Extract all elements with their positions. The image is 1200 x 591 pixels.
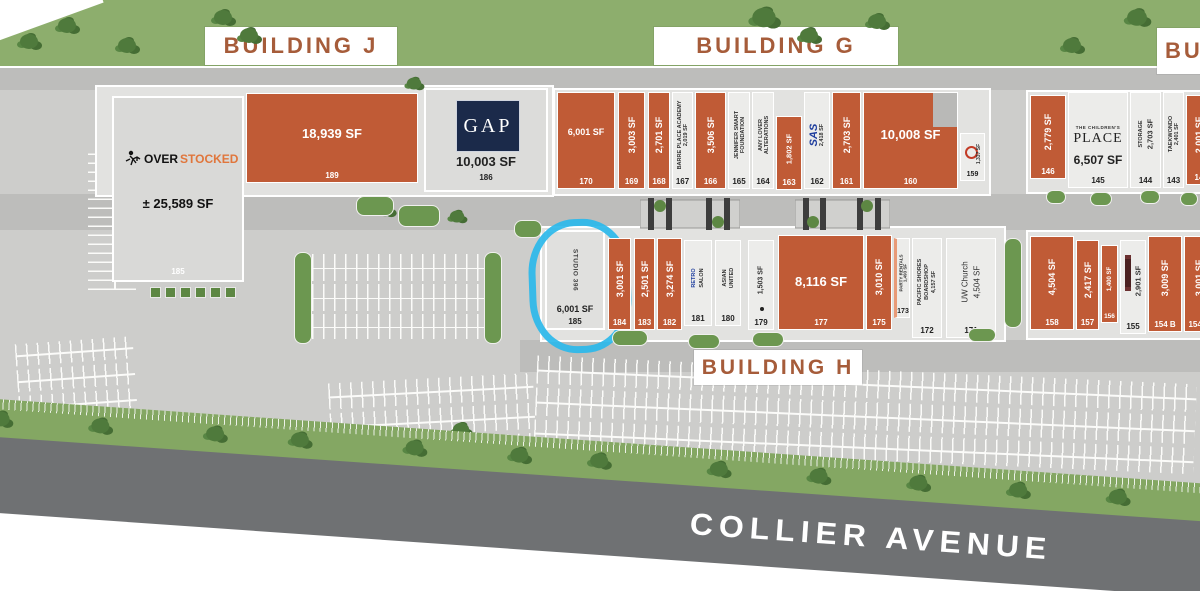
- unit-size: 3,003 SF: [627, 117, 637, 154]
- shrub-planter: [1180, 192, 1198, 206]
- unit-size: 2,703 SF: [1146, 119, 1155, 149]
- tree: [800, 28, 818, 43]
- suite-number: 185: [114, 267, 242, 276]
- building-f-label-partial: BU: [1157, 28, 1200, 74]
- suite-number: 159: [961, 171, 984, 178]
- tenant-name: ANY LOVER: [758, 119, 764, 151]
- unit-overstocked: OVERSTOCKED ± 25,589 SF 185: [112, 96, 244, 282]
- unit-158: 4,504 SF 158: [1030, 236, 1074, 330]
- tree: [809, 468, 828, 484]
- grass-band: [0, 0, 1200, 68]
- unit-183: 2,501 SF 183: [634, 238, 655, 330]
- unit-size: 3,274 SF: [665, 260, 675, 297]
- unit-size: 4,157 SF: [931, 271, 937, 293]
- suite-number: 161: [833, 177, 860, 186]
- bush: [225, 287, 236, 298]
- unit-size: 3,001 SF: [615, 260, 625, 297]
- unit-size: 2,418 SF: [819, 124, 825, 146]
- suite-number: 182: [658, 318, 681, 327]
- suite-number: 180: [716, 314, 740, 323]
- unit-159: 1,337 SF 159: [960, 133, 985, 181]
- tenant-name-2: BOARDSHOP: [924, 264, 930, 300]
- suite-number: 168: [649, 177, 669, 186]
- unit-145: THE CHILDREN'S PLACE 6,507 SF 145: [1068, 92, 1128, 188]
- unit-size: 2,417 SF: [1083, 261, 1093, 298]
- tenant-name: STORAGE: [1138, 121, 1144, 148]
- suite-number: 179: [749, 318, 773, 327]
- tenant-name-2: ALTERATIONS: [764, 116, 770, 154]
- unit-172: PACIFIC SHORES BOARDSHOP 4,157 SF 172: [912, 238, 942, 338]
- unit-182: 3,274 SF 182: [657, 238, 682, 330]
- unit-157: 2,417 SF 157: [1076, 240, 1099, 330]
- tree: [91, 418, 110, 434]
- suite-number: 170: [558, 177, 614, 186]
- tree: [118, 38, 136, 53]
- suite-number: 181: [685, 314, 711, 323]
- unit-167: BARRE PLACE ACADEMY 2,019 SF 167: [672, 92, 693, 189]
- suite-number: 184: [609, 318, 630, 327]
- unit-size: 4,504 SF: [972, 266, 981, 298]
- tenant-name: ASIAN: [722, 269, 728, 286]
- unit-size: 2,703 SF: [842, 117, 852, 154]
- tree: [1063, 38, 1081, 53]
- building-g-text: BUILDING G: [696, 33, 856, 59]
- unit-146: 2,779 SF 146: [1030, 95, 1066, 179]
- building-j-label: BUILDING J: [205, 27, 397, 65]
- unit-size: 2,001 SF: [1194, 116, 1200, 153]
- unit-169: 3,003 SF 169: [618, 92, 645, 189]
- unit-gap: GAP 10,003 SF 186: [424, 88, 548, 192]
- unit-173: PARTY RENTALS 1,493 SF 173: [894, 238, 910, 318]
- shrub-planter: [294, 252, 312, 344]
- tree: [20, 34, 38, 49]
- courtyard-structure: [640, 196, 740, 232]
- unit-size: 1,400 SF: [1107, 267, 1113, 291]
- suite-number: 162: [805, 177, 829, 186]
- shrub-planter: [752, 332, 784, 347]
- suite-number: 167: [673, 177, 692, 186]
- overstocked-logo: OVERSTOCKED: [124, 150, 238, 168]
- unit-size: 2,701 SF: [654, 117, 664, 154]
- unit-181: RETRO SALON 181: [684, 240, 712, 326]
- parking-stalls: [312, 284, 488, 311]
- gap-wordmark: GAP: [463, 115, 512, 138]
- parking-stalls: [312, 254, 488, 281]
- unit-179: 1,503 SF 179: [748, 240, 774, 330]
- tenant-logo-icon: [1125, 255, 1131, 291]
- unit-162: SAS 2,418 SF 162: [804, 92, 830, 189]
- unit-189: 18,939 SF 189: [246, 93, 418, 183]
- suite-number: 156: [1102, 313, 1117, 320]
- shrub-planter: [484, 252, 502, 344]
- suite-number: 183: [635, 318, 654, 327]
- suite-number: 144: [1131, 176, 1160, 185]
- bush: [165, 287, 176, 298]
- unit-size: 2,779 SF: [1043, 114, 1053, 151]
- childrens-place-line1: THE CHILDREN'S: [1069, 125, 1127, 130]
- unit-size: 6,001 SF: [558, 127, 614, 137]
- suite-number: 163: [777, 178, 801, 187]
- unit-184: 3,001 SF 184: [608, 238, 631, 330]
- suite-number: 143: [1164, 176, 1183, 185]
- unit-180: ASIAN UNITED 180: [715, 240, 741, 326]
- tree: [214, 10, 232, 25]
- tree: [1108, 489, 1127, 505]
- unit-size: ± 25,589 SF: [114, 196, 242, 211]
- unit-156: 1,400 SF 156: [1101, 245, 1118, 323]
- sas-logo: SAS: [808, 123, 820, 146]
- suite-number: 157: [1077, 318, 1098, 327]
- tenant-name: JENNIFER SMART: [734, 111, 740, 159]
- shrub-planter: [968, 328, 996, 342]
- site-plan: OVERSTOCKED ± 25,589 SF 185 18,939 SF 18…: [0, 0, 1200, 591]
- tenant-name: UW Church: [961, 261, 970, 302]
- unit-size: 2,401 SF: [1174, 123, 1180, 145]
- unit-163: 1,802 SF 163: [776, 116, 802, 190]
- unit-160: 10,008 SF 160: [863, 92, 958, 189]
- shrub-planter: [612, 330, 648, 346]
- tenant-name-2: UNITED: [729, 268, 735, 288]
- tenant-name: TAEKWONDO: [1168, 116, 1174, 152]
- suite-number: 14: [1187, 173, 1200, 182]
- tree: [752, 8, 775, 28]
- shrub-planter: [1004, 238, 1022, 328]
- unit-size: 1,802 SF: [785, 133, 794, 163]
- tree: [1127, 9, 1147, 26]
- suite-number: 175: [867, 318, 891, 327]
- suite-number: 154 A: [1185, 320, 1200, 329]
- unit-165: JENNIFER SMART FOUNDATION 165: [728, 92, 750, 189]
- unit-size: 1,503 SF: [758, 266, 765, 294]
- building-g-label: BUILDING G: [654, 27, 898, 65]
- bush: [195, 287, 206, 298]
- unit-164: ANY LOVER ALTERATIONS 164: [752, 92, 774, 189]
- tree: [909, 475, 928, 491]
- unit-size: 2,901 SF: [1134, 266, 1143, 296]
- tree: [58, 18, 76, 33]
- tenant-name: PACIFIC SHORES: [917, 259, 923, 305]
- tree: [0, 411, 10, 427]
- runner-cart-icon: [124, 150, 142, 168]
- shrub-planter: [514, 220, 542, 238]
- unit-168: 2,701 SF 168: [648, 92, 670, 189]
- suite-number: 155: [1121, 322, 1145, 331]
- courtyard-structure: [795, 196, 890, 232]
- unit-166: 3,506 SF 166: [695, 92, 726, 189]
- bush: [150, 287, 161, 298]
- unit-size: 3,009 SF: [1160, 260, 1170, 297]
- tree: [868, 14, 886, 29]
- tree: [510, 447, 529, 463]
- unit-155: 2,901 SF 155: [1120, 240, 1146, 334]
- tree: [407, 78, 421, 90]
- suite-number: 146: [1031, 167, 1065, 176]
- tree: [290, 432, 309, 448]
- tree: [709, 461, 728, 477]
- suite-number: 169: [619, 177, 644, 186]
- unit-143: TAEKWONDO 2,401 SF 143: [1163, 92, 1184, 188]
- unit-size: 2,501 SF: [640, 260, 650, 297]
- tree: [450, 211, 464, 223]
- tree: [405, 440, 424, 456]
- street-name: COLLIER AVENUE: [689, 507, 1054, 567]
- unit-154a: 3,001 SF 154 A: [1184, 236, 1200, 332]
- unit-171: UW Church 4,504 SF 171: [946, 238, 996, 338]
- shrub-planter: [688, 334, 720, 349]
- unit-size: 10,003 SF: [426, 154, 546, 169]
- unit-size: 10,008 SF: [864, 127, 957, 142]
- suite-number: 189: [247, 171, 417, 180]
- tree: [240, 28, 258, 43]
- bush: [180, 287, 191, 298]
- overstocked-wordmark-over: OVER: [144, 152, 178, 166]
- suite-number: 173: [897, 308, 909, 315]
- unit-size: 3,506 SF: [706, 117, 716, 154]
- unit-154b: 3,009 SF 154 B: [1148, 236, 1182, 332]
- gap-logo: GAP: [456, 100, 520, 152]
- unit-size: 6,507 SF: [1069, 153, 1127, 167]
- overstocked-wordmark-stocked: STOCKED: [180, 152, 238, 166]
- unit-size: 18,939 SF: [247, 126, 417, 141]
- childrens-place-logo: PLACE: [1069, 131, 1127, 147]
- suite-number: 166: [696, 177, 725, 186]
- suite-number: 154 B: [1149, 320, 1181, 329]
- tenant-name-2: FOUNDATION: [740, 117, 746, 153]
- unit-size: 1,493 SF: [903, 264, 908, 282]
- tenant-logo-icon: [760, 307, 764, 311]
- unit-175: 3,010 SF 175: [866, 235, 892, 330]
- shrub-planter: [398, 205, 440, 227]
- unit-144: STORAGE 2,703 SF 144: [1130, 92, 1161, 188]
- suite-number: 172: [913, 326, 941, 335]
- tenant-name: RETRO: [691, 268, 697, 287]
- suite-number: 158: [1031, 318, 1073, 327]
- unit-160-notch: [933, 93, 957, 127]
- unit-size: 2,019 SF: [683, 124, 689, 146]
- unit-142: 2,001 SF 14: [1186, 95, 1200, 185]
- unit-size: 1,337 SF: [976, 144, 982, 164]
- building-f-text: BU: [1165, 38, 1200, 64]
- tree: [590, 453, 609, 469]
- unit-size: 3,001 SF: [1194, 260, 1200, 297]
- shrub-planter: [356, 196, 394, 216]
- suite-number: 165: [729, 177, 749, 186]
- unit-size: 3,010 SF: [874, 259, 884, 296]
- shrub-planter: [1140, 190, 1160, 204]
- building-h-label: BUILDING H: [694, 350, 862, 385]
- suite-number: 160: [864, 177, 957, 186]
- unit-size: 8,116 SF: [779, 274, 863, 289]
- tenant-name-2: SALON: [699, 268, 705, 287]
- bush: [210, 287, 221, 298]
- suite-number: 145: [1069, 176, 1127, 185]
- suite-number: 186: [426, 173, 546, 182]
- parking-stalls: [312, 314, 488, 339]
- shrub-planter: [1046, 190, 1066, 204]
- unit-177: 8,116 SF 177: [778, 235, 864, 330]
- tree: [206, 426, 225, 442]
- suite-number: 164: [753, 177, 773, 186]
- tree: [1009, 482, 1028, 498]
- unit-size: 4,504 SF: [1047, 259, 1057, 296]
- building-h-text: BUILDING H: [702, 356, 855, 380]
- shrub-planter: [1090, 192, 1112, 206]
- unit-161: 2,703 SF 161: [832, 92, 861, 189]
- suite-number: 177: [779, 318, 863, 327]
- unit-170: 6,001 SF 170: [557, 92, 615, 189]
